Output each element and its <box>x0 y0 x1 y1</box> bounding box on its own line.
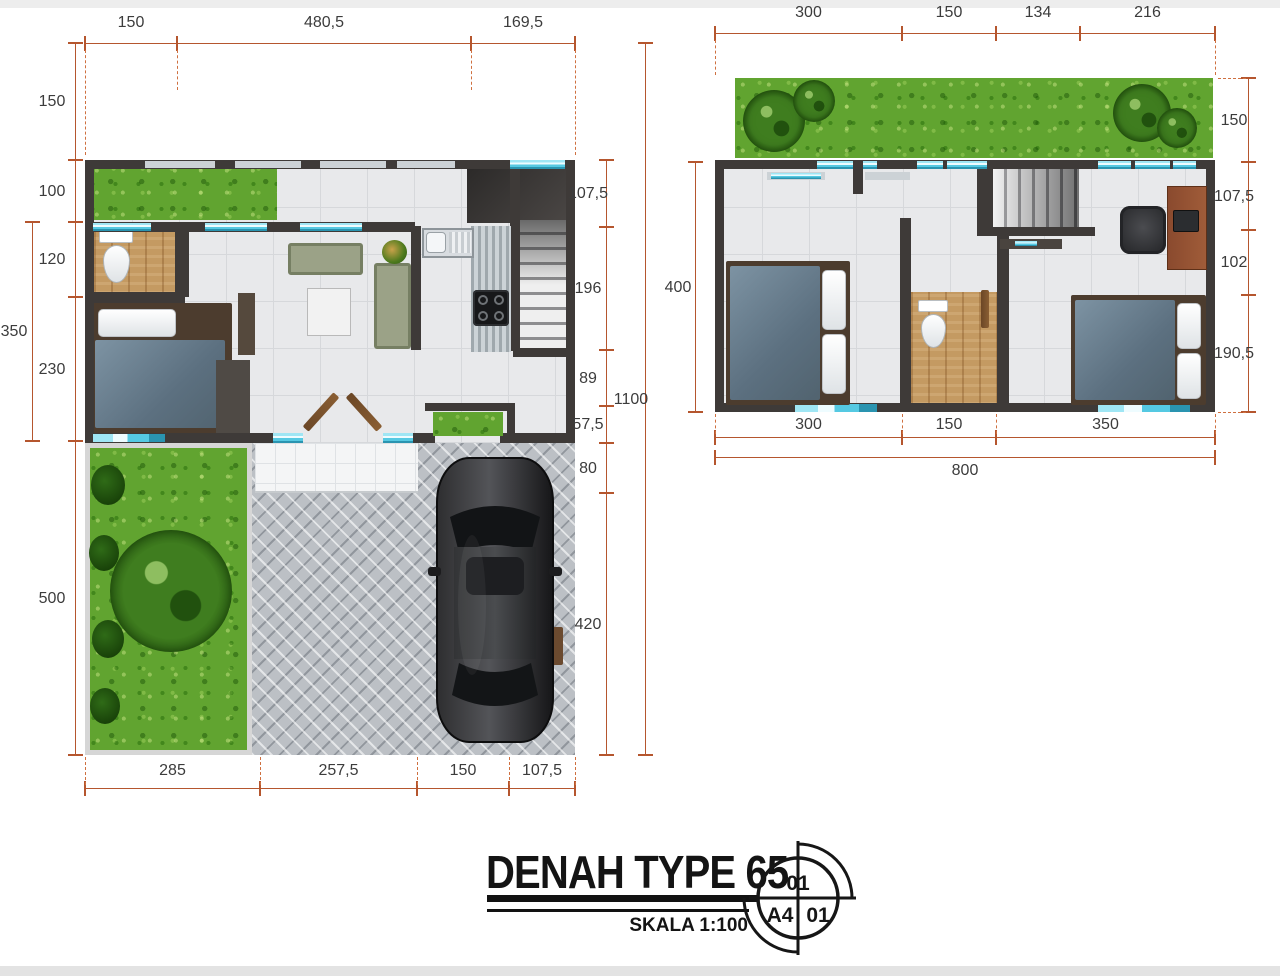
living-window <box>300 223 362 231</box>
window-sill <box>235 161 301 168</box>
bathroom-window <box>93 223 151 231</box>
bedroom-window <box>817 161 877 169</box>
drawing-number-stamp: 01 A4 01 <box>735 833 865 963</box>
stove-burner <box>478 295 488 305</box>
bedroom-window-bottom <box>795 404 877 412</box>
dim-label: 80 <box>558 460 618 478</box>
bed-mattress <box>1075 300 1175 400</box>
window-sill <box>865 172 910 180</box>
stove-burner <box>494 311 504 321</box>
entrance-wall-stub <box>413 433 435 443</box>
planter-wall <box>425 403 515 411</box>
sofa-vertical <box>374 263 411 349</box>
dim-label: 350 <box>996 416 1215 434</box>
scale-label: SKALA 1:100 <box>500 915 748 937</box>
dim-label: 500 <box>22 590 82 608</box>
bathroom-wall-left <box>900 218 911 412</box>
workspace-window <box>1173 161 1196 169</box>
stairs-bottom-rail <box>977 227 1095 236</box>
sofa-horizontal <box>288 243 363 275</box>
stairwell-wall <box>977 169 993 231</box>
workspace-window <box>1135 161 1170 169</box>
workspace-window <box>1098 161 1131 169</box>
kitchen-window <box>510 160 565 169</box>
title-rule-thin <box>487 909 749 912</box>
bed-pillow <box>822 334 846 394</box>
dim-label: 150 <box>902 416 996 434</box>
planter-wall-end <box>507 403 515 441</box>
dim-label: 400 <box>648 279 708 297</box>
dim-label: 107,5 <box>558 185 618 203</box>
bedroom-window-bottom <box>1098 404 1190 412</box>
bathroom-wall-bottom <box>85 292 185 303</box>
dim-label: 216 <box>1080 4 1215 22</box>
garden-bush <box>91 465 125 505</box>
coffee-table <box>307 288 351 336</box>
window-sill <box>397 161 455 168</box>
entrance-planter <box>433 412 503 436</box>
floor-plan-sheet: 150 480,5 169,5 285 257,5 150 107,5 150 … <box>0 0 1280 976</box>
hall-cabinet-large <box>216 360 250 437</box>
dim-label: 350 <box>0 323 36 341</box>
entrance-porch <box>255 443 418 493</box>
car-top-view <box>428 455 562 745</box>
dim-label: 150 <box>417 762 509 780</box>
hall-cabinet-tall <box>238 293 255 355</box>
garden-tree <box>110 530 232 652</box>
interior-window-sill <box>771 173 821 179</box>
dim-label: 169,5 <box>471 14 575 32</box>
roof-tree <box>1157 108 1197 148</box>
bathroom-door-leaf <box>981 290 989 328</box>
laptop <box>1173 210 1199 232</box>
kitchen-divider-wall <box>411 226 421 350</box>
toilet-tank <box>918 300 948 312</box>
wall-stub <box>853 160 863 194</box>
bed-pillow <box>98 309 176 337</box>
shelf-accent <box>1015 241 1037 246</box>
dim-label: 89 <box>558 370 618 388</box>
dim-label: 120 <box>22 251 82 269</box>
dim-label: 420 <box>558 616 618 634</box>
dim-label: 150 <box>22 93 82 111</box>
ground-floor-plan <box>85 160 575 755</box>
dim-label: 190,5 <box>1204 345 1264 363</box>
bed-mattress <box>95 340 225 428</box>
sink-basin <box>426 232 446 253</box>
stove-burner <box>478 311 488 321</box>
dim-label: 300 <box>715 416 902 434</box>
dim-label: 107,5 <box>509 762 575 780</box>
bed-pillow <box>1177 353 1201 399</box>
stamp-number-top: 01 <box>786 872 810 895</box>
dim-label: 57,5 <box>558 416 618 434</box>
dim-label: 107,5 <box>1204 188 1264 206</box>
bed-mattress <box>730 266 820 400</box>
bed-pillow <box>822 270 846 330</box>
living-window <box>205 223 267 231</box>
office-chair <box>1120 206 1166 254</box>
garden-bush <box>90 688 120 724</box>
bathroom-wall-right <box>997 228 1009 412</box>
stamp-number-bottom: 01 <box>806 904 830 927</box>
stove-burner <box>494 295 504 305</box>
outer-wall-left <box>715 160 724 412</box>
bedroom-window <box>93 434 165 442</box>
dim-label: 230 <box>22 361 82 379</box>
dim-label: 300 <box>715 4 902 22</box>
stamp-paper-size: A4 <box>767 904 794 927</box>
entrance-window-right <box>383 433 413 443</box>
staircase-shadow <box>993 169 1079 227</box>
dim-label: 1100 <box>601 391 661 409</box>
garden-bush <box>89 535 119 571</box>
window-sill <box>320 161 386 168</box>
hall-window <box>917 161 943 169</box>
stairs-wall <box>510 169 520 351</box>
dim-label: 100 <box>22 183 82 201</box>
upper-floor-plan <box>715 78 1215 412</box>
dim-label: 102 <box>1204 254 1264 272</box>
garden-bush <box>92 620 124 658</box>
kitchen-counter <box>471 226 511 352</box>
dim-label: 150 <box>902 4 996 22</box>
sink-drainer <box>449 232 471 253</box>
dim-label: 800 <box>715 462 1215 480</box>
stove <box>473 290 509 326</box>
window-sill <box>145 161 215 168</box>
bathroom-wall-right <box>175 222 189 297</box>
dim-label: 480,5 <box>177 14 471 32</box>
dim-label: 150 <box>1204 112 1264 130</box>
bed-pillow <box>1177 303 1201 349</box>
hall-window <box>947 161 987 169</box>
potted-plant <box>382 240 407 264</box>
dim-label: 150 <box>85 14 177 32</box>
front-garden-patch <box>89 164 277 220</box>
dim-label: 134 <box>996 4 1080 22</box>
dim-label: 257,5 <box>260 762 417 780</box>
entrance-window-left <box>273 433 303 443</box>
page-bottom-strip <box>0 966 1280 976</box>
roof-tree <box>793 80 835 122</box>
dim-label: 285 <box>85 762 260 780</box>
dim-label: 196 <box>558 280 618 298</box>
title-rule-thick <box>487 895 759 902</box>
